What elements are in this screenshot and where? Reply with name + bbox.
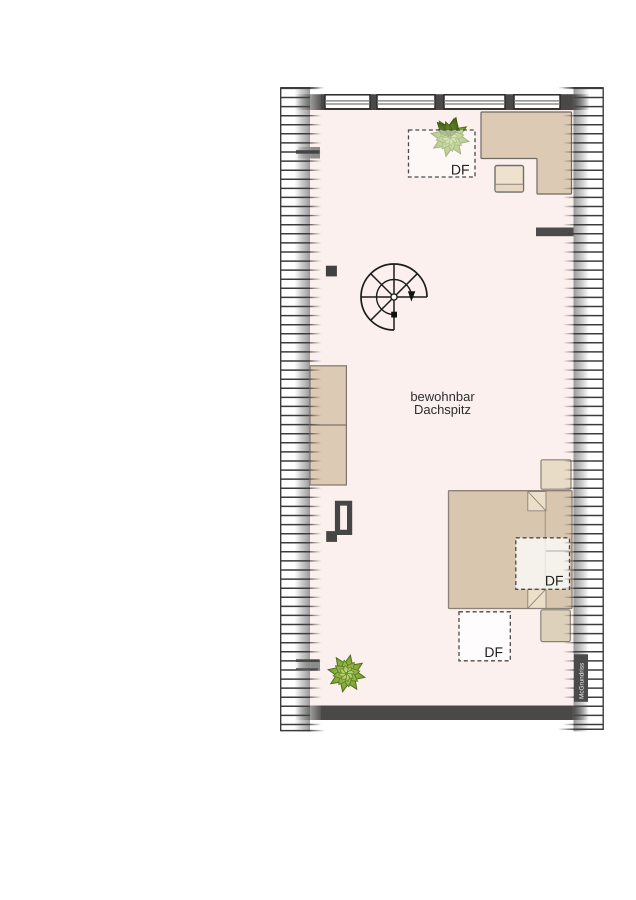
svg-text:Dachspitz: Dachspitz (414, 402, 471, 417)
svg-text:McGrundriss: McGrundriss (579, 663, 586, 699)
svg-text:DF: DF (545, 573, 564, 589)
svg-text:DF: DF (451, 162, 470, 178)
svg-text:DF: DF (484, 644, 503, 660)
